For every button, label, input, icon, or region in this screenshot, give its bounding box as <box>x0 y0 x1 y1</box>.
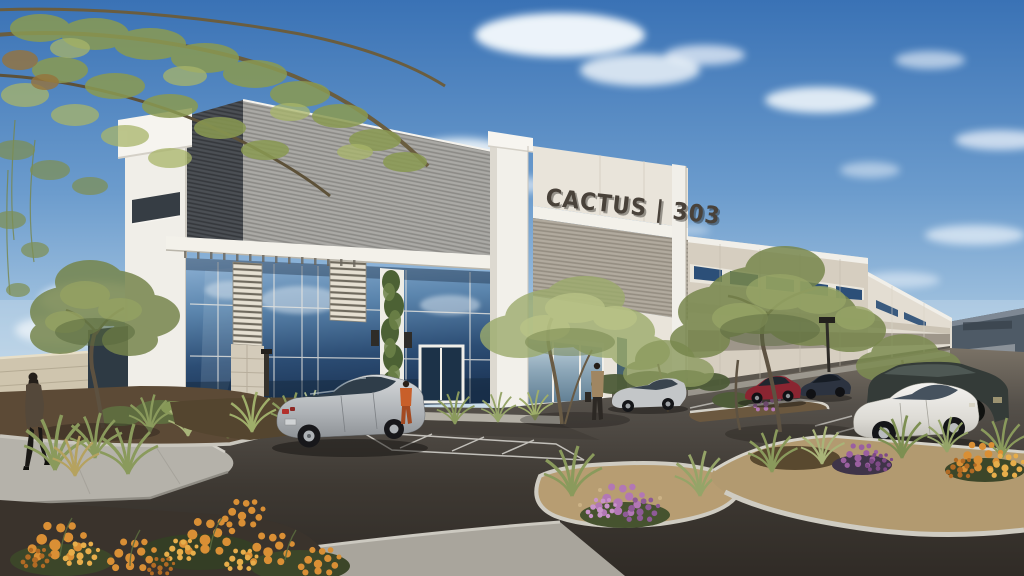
rendering-canvas: CACTUS | 303 CACTUS | 303 <box>0 0 1024 576</box>
entry-door <box>420 346 463 402</box>
corner-pylon <box>488 131 533 408</box>
wall-sconce <box>371 330 379 346</box>
wall-sconce <box>404 332 412 348</box>
